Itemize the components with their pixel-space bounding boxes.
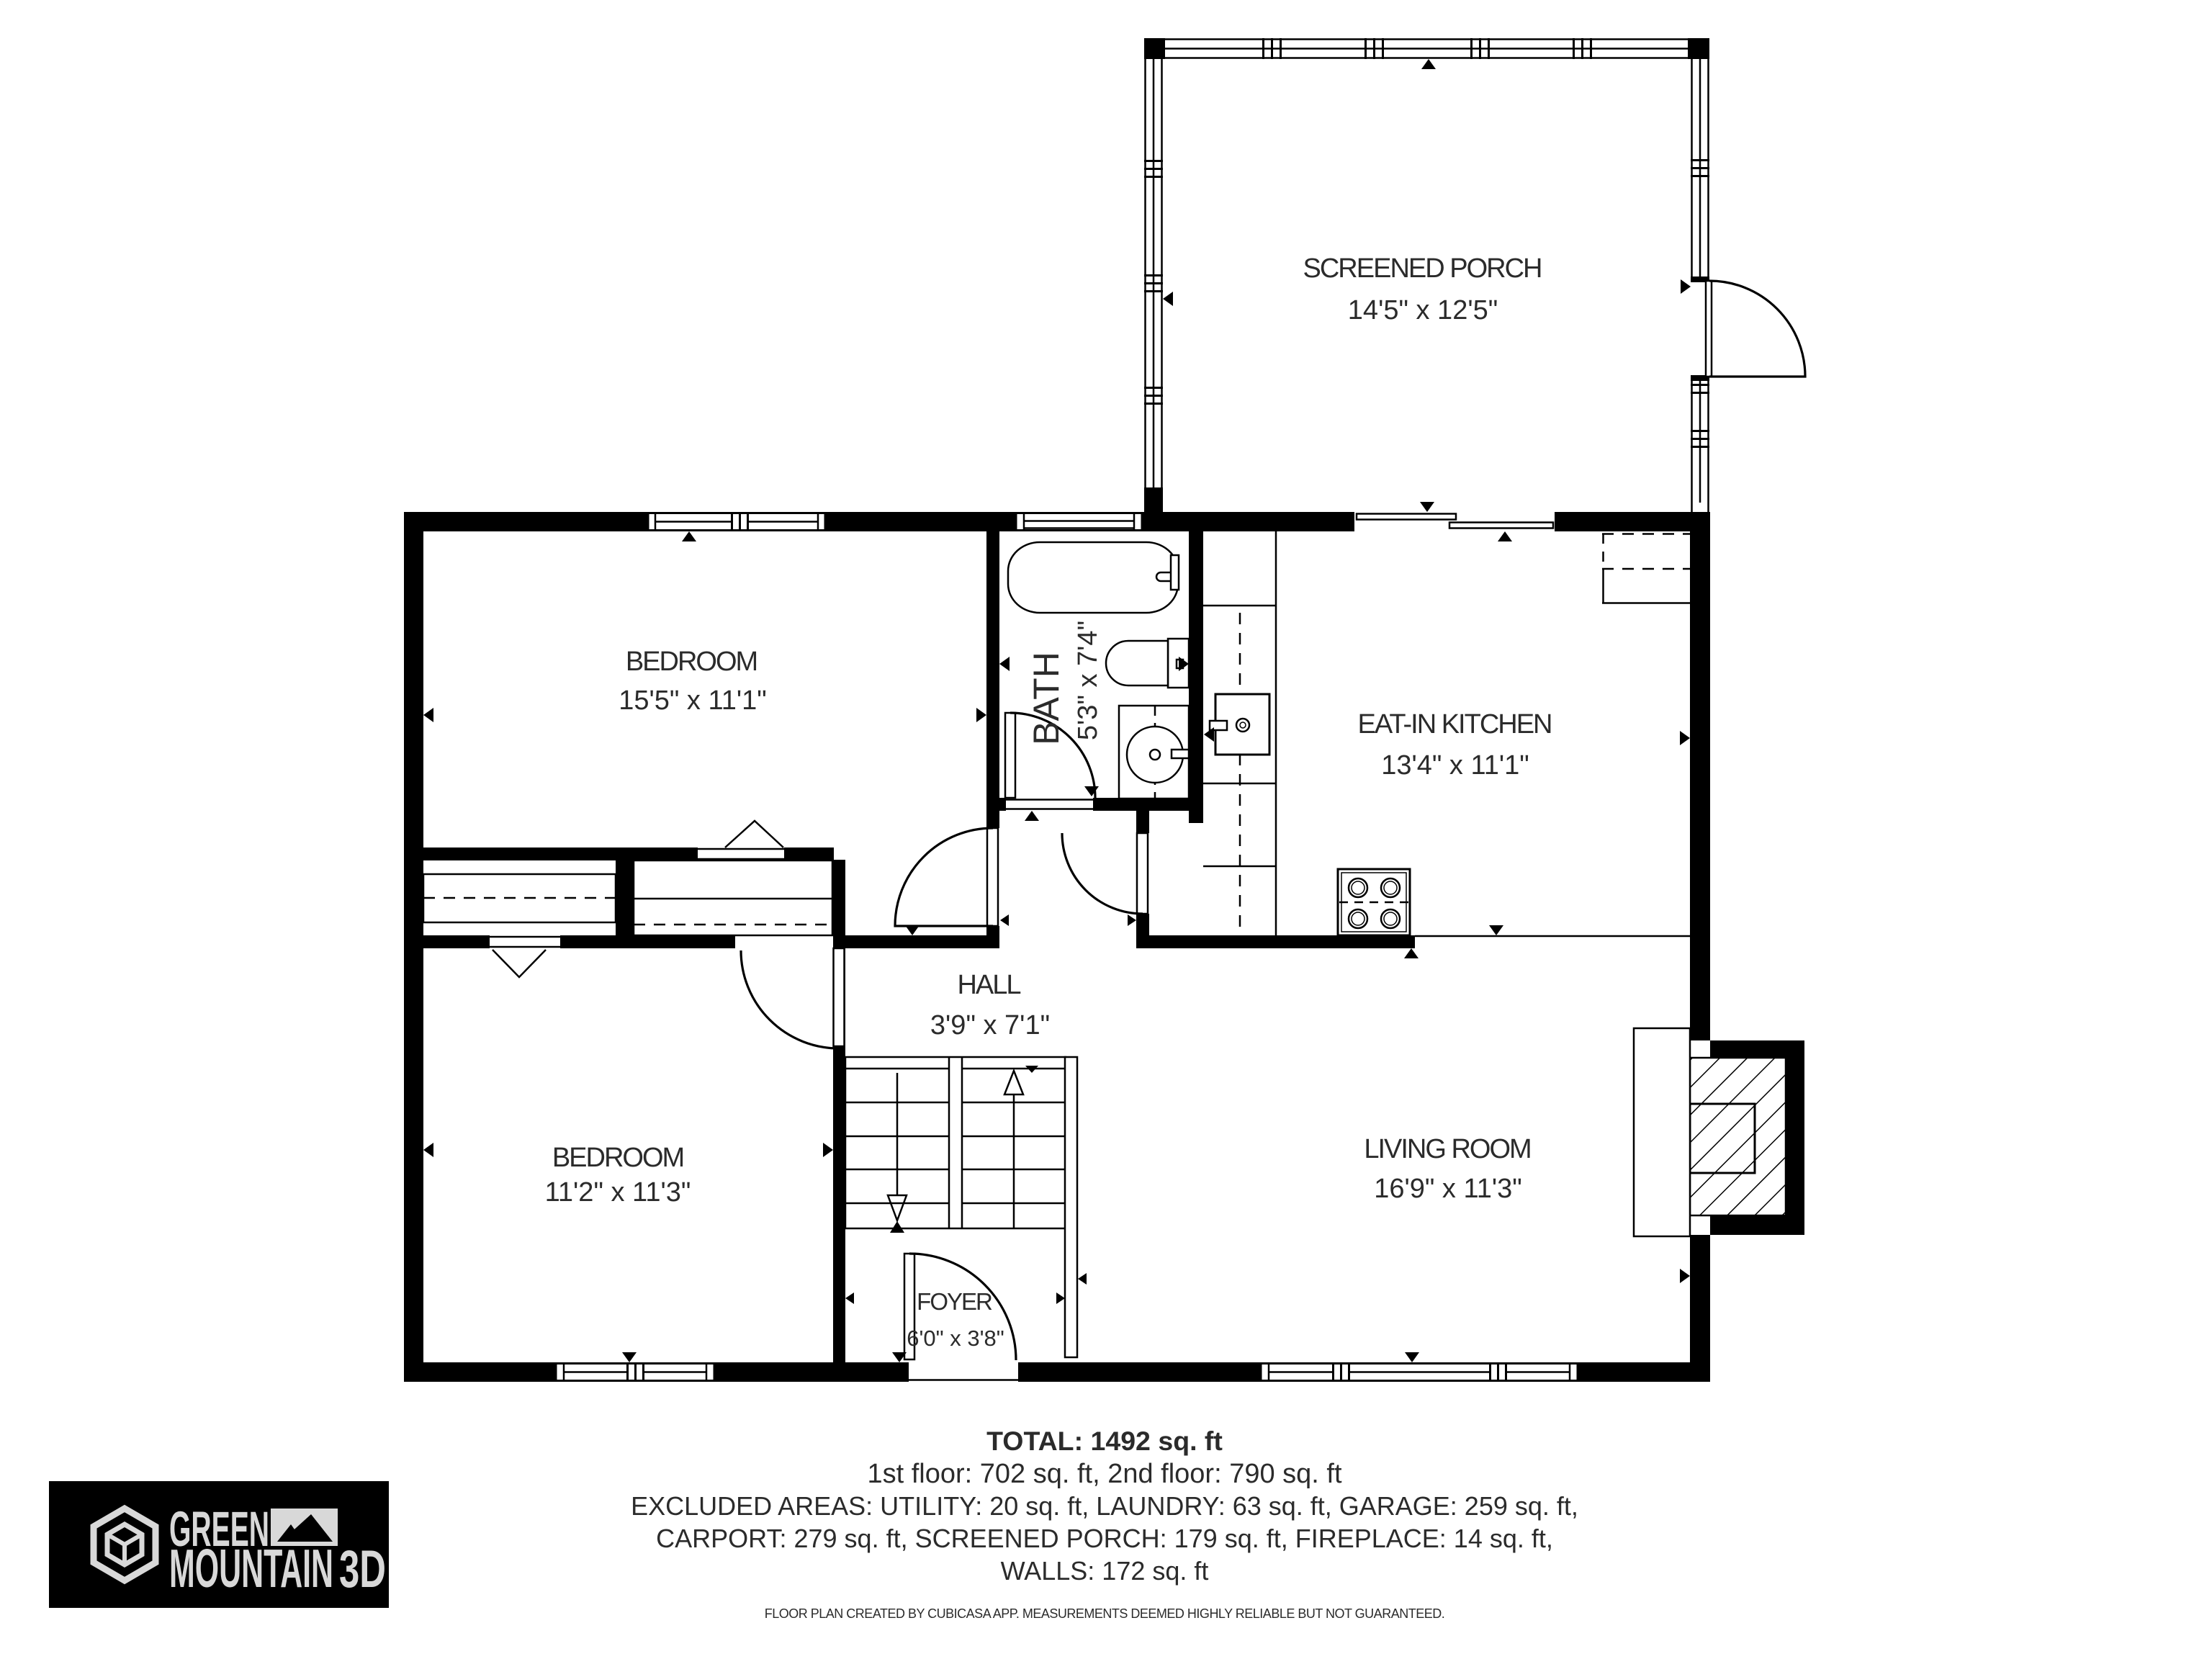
svg-text:3D: 3D	[339, 1540, 386, 1599]
svg-text:FOYER: FOYER	[917, 1288, 992, 1315]
svg-text:15'5" x 11'1": 15'5" x 11'1"	[619, 685, 767, 716]
svg-text:13'4" x 11'1": 13'4" x 11'1"	[1381, 750, 1529, 781]
svg-text:LIVING ROOM: LIVING ROOM	[1364, 1134, 1530, 1164]
svg-text:6'0" x 3'8": 6'0" x 3'8"	[907, 1326, 1004, 1351]
svg-text:1st floor: 702 sq. ft, 2nd flo: 1st floor: 702 sq. ft, 2nd floor: 790 sq…	[867, 1459, 1341, 1489]
svg-text:MOUNTAIN: MOUNTAIN	[169, 1538, 333, 1599]
svg-text:BEDROOM: BEDROOM	[552, 1143, 683, 1173]
svg-text:BEDROOM: BEDROOM	[626, 647, 757, 677]
svg-text:HALL: HALL	[957, 970, 1020, 1000]
svg-text:3'9" x 7'1": 3'9" x 7'1"	[930, 1010, 1050, 1040]
svg-text:TOTAL: 1492 sq. ft: TOTAL: 1492 sq. ft	[986, 1426, 1223, 1456]
svg-text:EXCLUDED AREAS: UTILITY: 20 sq: EXCLUDED AREAS: UTILITY: 20 sq. ft, LAUN…	[631, 1491, 1578, 1521]
svg-text:CARPORT: 279 sq. ft, SCREENED: CARPORT: 279 sq. ft, SCREENED PORCH: 179…	[656, 1524, 1553, 1553]
svg-text:WALLS: 172 sq. ft: WALLS: 172 sq. ft	[1001, 1556, 1209, 1586]
svg-text:14'5" x 12'5": 14'5" x 12'5"	[1348, 295, 1498, 325]
svg-text:SCREENED PORCH: SCREENED PORCH	[1303, 253, 1542, 284]
svg-text:BATH: BATH	[1026, 652, 1066, 745]
svg-text:FLOOR PLAN CREATED BY CUBICASA: FLOOR PLAN CREATED BY CUBICASA APP. MEAS…	[765, 1606, 1444, 1621]
svg-text:11'2" x 11'3": 11'2" x 11'3"	[545, 1177, 691, 1208]
svg-text:16'9" x 11'3": 16'9" x 11'3"	[1374, 1174, 1522, 1204]
svg-text:5'3" x 7'4": 5'3" x 7'4"	[1073, 621, 1103, 740]
svg-text:EAT-IN KITCHEN: EAT-IN KITCHEN	[1358, 709, 1552, 739]
